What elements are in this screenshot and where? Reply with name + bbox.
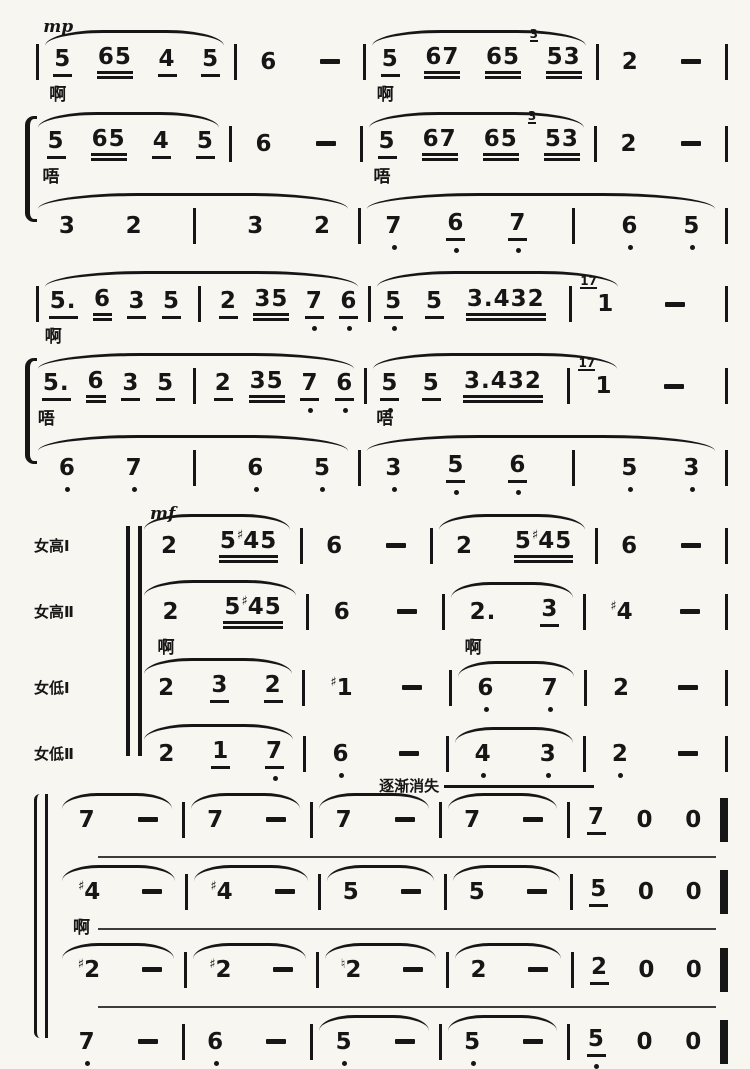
note (314, 141, 338, 146)
note: 171 (594, 374, 613, 398)
barline (363, 44, 366, 80)
octave-dot (214, 1061, 219, 1066)
note: 5唔 (380, 371, 399, 400)
slur-group: 5.啊63523576 (41, 286, 366, 322)
barline (193, 208, 196, 244)
note: 5 (162, 289, 181, 318)
note-group: 500 (575, 877, 718, 906)
note: 35 (249, 369, 285, 403)
note: 2啊 (161, 600, 180, 624)
note-number: 3.432 (463, 369, 543, 403)
note-number: 7 (587, 805, 606, 834)
note: 5 (335, 1030, 354, 1054)
barline (449, 670, 452, 706)
slur-group: 逐渐消失7 (444, 808, 566, 832)
barline (567, 802, 570, 838)
barline (725, 286, 728, 322)
barline (300, 528, 303, 564)
slur-group: 553.432171 (373, 286, 626, 322)
note-number: ♯4 (77, 880, 102, 904)
note-number: 0 (636, 808, 655, 832)
slur-group: ♯2 (189, 958, 313, 982)
note-number: 5♯45 (514, 529, 573, 563)
note-number: 3 (384, 456, 403, 480)
note: 5 (620, 456, 639, 480)
note-number: ♯2 (208, 958, 233, 982)
held-dash (138, 1039, 158, 1044)
note-number: 7 (78, 1030, 97, 1054)
note: 7 (265, 739, 284, 768)
note-number: 3 (246, 214, 265, 238)
note: ♯4啊 (77, 880, 102, 904)
note: 6 (246, 456, 265, 480)
barline (725, 528, 728, 564)
note: 5.啊 (49, 289, 78, 318)
lyric: 啊 (49, 80, 66, 105)
held-dash (395, 1039, 415, 1044)
barline (725, 208, 728, 244)
note-number: ♯2 (77, 958, 102, 982)
note-number: 0 (685, 958, 704, 982)
note: 6 (620, 534, 639, 558)
note: 67 (422, 127, 458, 161)
note: 6 (446, 211, 465, 240)
accidental: ♯ (78, 957, 84, 972)
note: 6 (58, 456, 77, 480)
note-number: 0 (684, 808, 703, 832)
note: 5 (156, 371, 175, 400)
barline (596, 44, 599, 80)
slur-group: ♯4 (190, 880, 315, 904)
note-number: 5 (156, 371, 175, 400)
grace-note: 17 (580, 275, 597, 289)
slur-group: 217 (140, 739, 301, 768)
barline (446, 952, 449, 988)
note: ♯1 (329, 676, 354, 700)
note-number: 5 (53, 47, 72, 76)
note-group: 6 (308, 742, 443, 766)
barline (184, 952, 187, 988)
note: 7 (300, 371, 319, 400)
note: 7 (384, 214, 403, 238)
note: 2.啊 (469, 600, 498, 624)
slur-group: 76765 (363, 208, 723, 244)
held-dash (386, 543, 406, 548)
extension-line (98, 928, 716, 930)
voice-label: 女低Ⅱ (34, 743, 132, 764)
note: 5 (682, 214, 701, 238)
note-number: 7 (125, 456, 144, 480)
note-number: 2 (219, 289, 238, 318)
note (662, 384, 686, 389)
note: 3 (210, 673, 229, 702)
note: 5唔 (378, 129, 397, 158)
note: 6 (476, 676, 495, 700)
held-dash (528, 967, 548, 972)
note-number: 5 (682, 214, 701, 238)
barline (306, 594, 309, 630)
barline (302, 670, 305, 706)
lyric: 啊 (377, 80, 394, 105)
note-number: 5 (47, 129, 66, 158)
note-number: 3 (210, 673, 229, 702)
note-number: 2 (612, 676, 631, 700)
note: 7 (508, 211, 527, 240)
octave-dot (392, 487, 397, 492)
note: 2 (157, 676, 176, 700)
note: 2 (620, 132, 639, 156)
system: 女高Ⅰmf25♯45625♯456女高Ⅱ2啊5♯4562.啊3♯4女低Ⅰ232♯… (34, 524, 730, 776)
barline (303, 736, 306, 772)
octave-dot (516, 248, 521, 253)
lyric: 唔 (376, 404, 393, 429)
score-line: 女低Ⅰ232♯1672 (140, 666, 730, 710)
note: 2 (264, 673, 283, 702)
octave-dot (454, 490, 459, 495)
note-number: 7 (265, 739, 284, 768)
held-dash (678, 751, 698, 756)
note-number: 2 (621, 50, 640, 74)
note: 3 (121, 371, 140, 400)
score-line: 777逐渐消失7700 (58, 798, 730, 842)
slur-group: 2.啊3 (447, 597, 581, 626)
note (526, 967, 550, 972)
held-dash (266, 817, 286, 822)
note-group: 6 (311, 600, 440, 624)
note-number: 2. (469, 600, 498, 624)
note-number: 6 (246, 456, 265, 480)
note (525, 889, 549, 894)
note: 2 (470, 958, 489, 982)
accidental: ♯ (532, 528, 538, 543)
note: 353 (544, 127, 580, 161)
note-number: 2 (157, 742, 176, 766)
octave-dot (343, 408, 348, 413)
note-number: 2 (157, 676, 176, 700)
note: 3 (384, 456, 403, 480)
note-group: 200 (576, 955, 718, 984)
held-dash (401, 889, 421, 894)
note-number: 0 (637, 880, 656, 904)
accidental: ♯ (610, 599, 616, 614)
slur-group: ♯2 (58, 958, 182, 982)
slur-group: mp5啊6545 (41, 45, 232, 79)
accidental: ♮ (341, 957, 346, 972)
note: 7 (587, 805, 606, 834)
barline (364, 368, 367, 404)
barline (725, 450, 728, 486)
slur-group: 43 (451, 742, 581, 766)
note: 0 (636, 1030, 655, 1054)
octave-dot (347, 326, 352, 331)
note: 2 (455, 534, 474, 558)
note: 5 (196, 129, 215, 158)
note: 35 (253, 287, 289, 321)
note-number: 0 (684, 1030, 703, 1054)
held-dash (275, 889, 295, 894)
octave-dot (392, 326, 397, 331)
note: 2 (214, 371, 233, 400)
voice-label: 女高Ⅰ (34, 535, 132, 556)
barline (725, 594, 728, 630)
note: 5 (384, 289, 403, 318)
note-number: 7 (305, 289, 324, 318)
note: 0 (684, 1030, 703, 1054)
score-line: 5唔654565唔67653532 (34, 122, 730, 166)
note: 5 (425, 289, 444, 318)
note: 2 (611, 742, 630, 766)
slur-group: ♯4啊 (58, 880, 183, 904)
note-number: 7 (508, 211, 527, 240)
octave-dot (65, 487, 70, 492)
note (273, 889, 297, 894)
note: 7 (78, 1030, 97, 1054)
note-number: 3 (682, 456, 701, 480)
note-group: 6 (187, 1030, 309, 1054)
held-dash (316, 141, 336, 146)
note-group: ♯1 (307, 676, 447, 700)
dynamic-marking: mf (150, 504, 175, 524)
note-number: 1 (596, 292, 615, 316)
note-number: ♮2 (340, 958, 364, 982)
note: 5 (589, 877, 608, 906)
note: 3 (539, 742, 558, 766)
note-number: 2 (590, 955, 609, 984)
barline (360, 126, 363, 162)
note-group: 6 (600, 534, 723, 558)
note (400, 685, 424, 690)
note-group: 2 (599, 132, 723, 156)
note-group: 2 (601, 50, 723, 74)
note: ♯2 (77, 958, 102, 982)
note-group: 6 (234, 132, 358, 156)
held-dash (665, 302, 685, 307)
fade-annotation: 逐渐消失 (379, 775, 594, 796)
note-number: 0 (637, 958, 656, 982)
note-number: 53 (546, 45, 582, 79)
note-number: 6 (325, 534, 344, 558)
barline (229, 126, 232, 162)
note: 67 (424, 45, 460, 79)
note (395, 609, 419, 614)
barline (725, 670, 728, 706)
final-barline (720, 1020, 728, 1064)
slur-group: 5啊6765353 (368, 45, 593, 79)
note-number: 6 (93, 287, 112, 321)
slur-group: 232 (140, 673, 300, 702)
held-dash (680, 609, 700, 614)
note: 5 (468, 880, 487, 904)
note-number: 6 (331, 742, 350, 766)
note: 5 (422, 371, 441, 400)
held-dash (399, 751, 419, 756)
note-group: 700 (572, 805, 718, 834)
slur-group: 5.唔63523576 (34, 368, 362, 404)
note-number: 5 (384, 289, 403, 318)
slur-group: 5 (449, 880, 568, 904)
score-line: 女高Ⅰmf25♯45625♯456 (140, 524, 730, 568)
barline (439, 1024, 442, 1060)
note-number: 6 (620, 534, 639, 558)
score-line: 女高Ⅱ2啊5♯4562.啊3♯4 (140, 590, 730, 634)
note (676, 751, 700, 756)
accidental: ♯ (78, 879, 84, 894)
note: 7 (125, 456, 144, 480)
note: 65 (483, 127, 519, 161)
sheet-music-page: mp5啊654565啊676535325唔654565唔676535323232… (0, 0, 750, 1057)
note: 3 (682, 456, 701, 480)
note-number: 5 (378, 129, 397, 158)
held-dash (395, 817, 415, 822)
note-number: 2 (161, 600, 180, 624)
barline (182, 1024, 185, 1060)
note (384, 543, 408, 548)
note-number: 6 (259, 50, 278, 74)
note: 5♯45 (223, 595, 282, 629)
note: 逐渐消失7 (463, 808, 482, 832)
note: 2 (590, 955, 609, 984)
note: 3 (540, 597, 559, 626)
note: 5♯45 (514, 529, 573, 563)
held-dash (142, 967, 162, 972)
note-number: 6 (508, 453, 527, 482)
note: ♯4 (609, 600, 634, 624)
note-number: 5 (196, 129, 215, 158)
note (264, 817, 288, 822)
octave-dot (454, 248, 459, 253)
note-number: 35 (253, 287, 289, 321)
system-bracket (34, 794, 48, 1038)
held-dash (266, 1039, 286, 1044)
note: 65 (91, 127, 127, 161)
slur-group: 5唔6545 (34, 127, 227, 161)
note-number: 6 (476, 676, 495, 700)
note (679, 543, 703, 548)
extension-line (98, 856, 716, 858)
barline (570, 874, 573, 910)
slur-group: 6765 (34, 450, 356, 486)
note-number: 7 (78, 808, 97, 832)
octave-dot (339, 773, 344, 778)
note: 7 (305, 289, 324, 318)
note-number: 0 (685, 880, 704, 904)
note: 0 (684, 808, 703, 832)
note: 3.432 (463, 369, 543, 403)
barline (725, 126, 728, 162)
note: 3 (58, 214, 77, 238)
barline (584, 670, 587, 706)
note (679, 141, 703, 146)
barline (583, 736, 586, 772)
note: mp5啊 (53, 47, 72, 76)
slur-group: 5 (323, 880, 442, 904)
note-number: 5 (380, 371, 399, 400)
barline (594, 126, 597, 162)
note-number: 5 (589, 877, 608, 906)
slur-group: 5唔53.432171 (369, 368, 624, 404)
score-line: 676535653 (34, 446, 730, 490)
note: 65 (97, 45, 133, 79)
grace-note: 3 (530, 28, 538, 42)
note (399, 889, 423, 894)
lyric: 啊 (465, 633, 482, 658)
note: 6 (325, 534, 344, 558)
note: 4 (152, 129, 171, 158)
note: 171 (596, 292, 615, 316)
note (264, 1039, 288, 1044)
slur-group: 2 (451, 958, 569, 982)
note-number: 6 (333, 600, 352, 624)
barline (193, 368, 196, 404)
note: 2 (125, 214, 144, 238)
note-number: ♯1 (329, 676, 354, 700)
barline (569, 286, 572, 322)
held-dash (273, 967, 293, 972)
note-number: 65 (91, 127, 127, 161)
note: 5唔 (47, 129, 66, 158)
note (271, 967, 295, 972)
note-number: 5 (313, 456, 332, 480)
barline (185, 874, 188, 910)
note: 2 (621, 50, 640, 74)
grace-note: 3 (528, 110, 536, 124)
note-number: 65 (483, 127, 519, 161)
barline (368, 286, 371, 322)
held-dash (320, 59, 340, 64)
note: ♮2 (340, 958, 364, 982)
note: 7 (206, 808, 225, 832)
note-number: 5 (620, 456, 639, 480)
slur-group: 7 (58, 808, 180, 832)
note: 1 (211, 739, 230, 768)
octave-dot (516, 490, 521, 495)
note-number: 5 (587, 1027, 606, 1056)
slur-group: 2啊5♯45 (140, 595, 304, 629)
score-line: 5.唔635235765唔53.432171 (34, 364, 730, 408)
barline (310, 802, 313, 838)
note: mf2 (160, 534, 179, 558)
barline (725, 44, 728, 80)
note-number: 2 (620, 132, 639, 156)
barline (198, 286, 201, 322)
note: 6 (206, 1030, 225, 1054)
note-number: 2 (160, 534, 179, 558)
slur-group: 5 (315, 1030, 437, 1054)
slur-group: 7 (315, 808, 437, 832)
note-number: 5 (381, 47, 400, 76)
note: 2 (219, 289, 238, 318)
held-dash (664, 384, 684, 389)
octave-dot (320, 487, 325, 492)
held-dash (397, 609, 417, 614)
barline (572, 208, 575, 244)
accidental: ♯ (209, 957, 215, 972)
note-number: 35 (249, 369, 285, 403)
held-dash (403, 967, 423, 972)
note: 3.432 (466, 287, 546, 321)
note-number: 65 (97, 45, 133, 79)
note-number: 5 (162, 289, 181, 318)
note-number: 2 (611, 742, 630, 766)
note (136, 1039, 160, 1044)
note-number: 3 (58, 214, 77, 238)
barline (583, 594, 586, 630)
octave-dot (690, 245, 695, 250)
barline (234, 44, 237, 80)
note: 6 (259, 50, 278, 74)
note: 0 (637, 880, 656, 904)
dynamic-marking: mp (43, 17, 73, 37)
